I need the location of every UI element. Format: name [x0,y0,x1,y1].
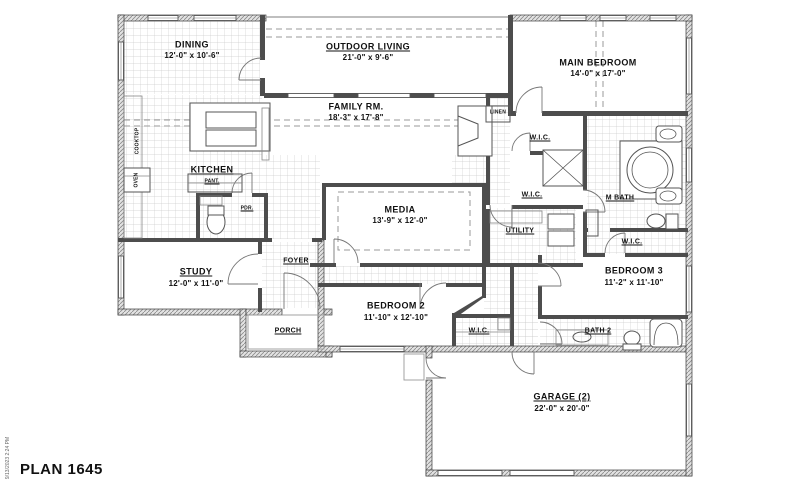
plan-title: PLAN 1645 [20,461,103,478]
room-label-main-bedroom: MAIN BEDROOM [559,59,636,68]
room-label-dining: DINING [175,41,209,50]
room-label-bath2: BATH 2 [585,328,612,335]
room-dims-garage: 22'-0" x 20'-0" [534,405,589,413]
label-wic-3: W.I.C. [622,239,643,246]
label-cooktop: COOKTOP [136,128,141,155]
room-label-foyer: FOYER [283,258,309,265]
label-pantry: PANT. [204,180,219,185]
label-wic-1: W.I.C. [530,135,551,142]
label-wic-bedroom2: W.I.C. [469,328,490,335]
room-dims-bedroom3: 11'-2" x 11'-10" [604,279,663,287]
room-label-mbath: M BATH [606,195,635,202]
label-linen: LINEN [490,111,506,116]
label-powder: PDR. [241,207,254,212]
room-label-study: STUDY [180,268,213,277]
room-label-bedroom2: BEDROOM 2 [367,302,425,311]
room-dims-main-bedroom: 14'-0" x 17'-0" [570,70,625,78]
room-label-kitchen: KITCHEN [191,166,234,175]
label-oven: OVEN [135,173,140,188]
room-label-family: FAMILY RM. [328,103,383,112]
room-dims-media: 13'-9" x 12'-0" [372,217,427,225]
floor-plan-page: DINING 12'-0" x 10'-6" OUTDOOR LIVING 21… [0,0,800,500]
room-label-outdoor-living: OUTDOOR LIVING [326,43,410,52]
label-wic-2: W.I.C. [522,192,543,199]
floor-plan-drawing [0,0,800,500]
room-dims-family: 18'-3" x 17'-8" [328,114,383,122]
plan-timestamp: 9/13/2023 2:24 PM [5,428,11,488]
room-label-porch: PORCH [275,328,302,335]
room-dims-study: 12'-0" x 11'-0" [169,280,224,288]
room-label-bedroom3: BEDROOM 3 [605,267,663,276]
room-dims-bedroom2: 11'-10" x 12'-10" [364,314,428,322]
room-label-garage: GARAGE (2) [533,393,590,402]
room-label-media: MEDIA [385,206,416,215]
room-dims-dining: 12'-0" x 10'-6" [164,52,219,60]
room-dims-outdoor-living: 21'-0" x 9'-6" [343,54,394,62]
room-label-utility: UTILITY [506,228,535,235]
